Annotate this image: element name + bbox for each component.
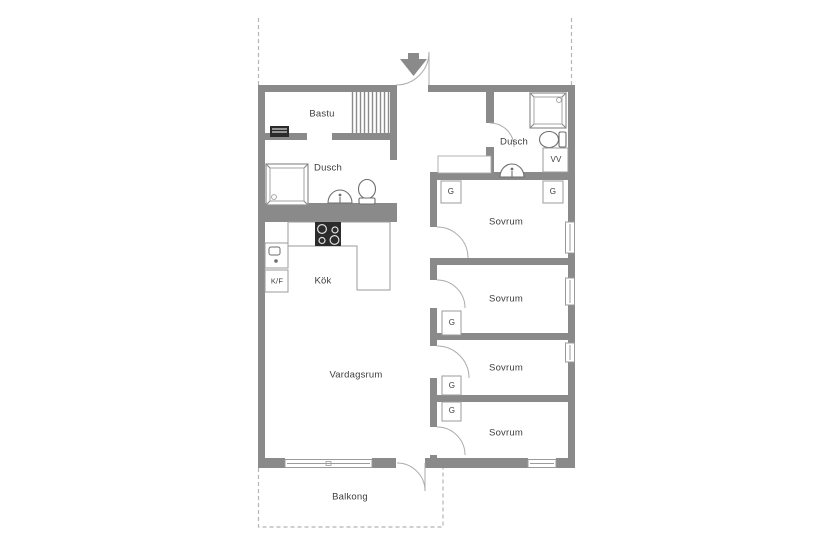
floorplan: Bastu Dusch Dusch Kök Vardagsrum Sovrum … — [0, 0, 831, 555]
entry-arrow-icon — [400, 53, 427, 76]
wall-right-3 — [568, 305, 575, 343]
door-sovrum3 — [437, 346, 469, 378]
wall-bottom-1 — [258, 458, 285, 468]
room-label-sovrum-1: Sovrum — [489, 217, 523, 227]
wall-sovrum1-sovrum2 — [430, 258, 568, 265]
wall-bedrooms-left-4 — [430, 378, 437, 427]
wall-sovrum3-sovrum4 — [430, 395, 568, 402]
wall-bastu-bottom-right — [332, 133, 390, 140]
wall-top-right — [428, 85, 575, 92]
door-sovrum1 — [437, 227, 468, 258]
wall-bottom-4 — [556, 458, 575, 468]
door-sovrum4 — [437, 427, 465, 455]
label-wardrobe-4: G — [449, 382, 455, 390]
shower-cabin-right-icon — [530, 93, 566, 128]
wall-left — [258, 85, 265, 468]
wall-top-left — [258, 85, 397, 92]
label-wardrobe-1: G — [448, 188, 454, 196]
shower-cabin-left-icon — [266, 164, 308, 205]
window-sovrum4 — [528, 460, 556, 468]
window-vardagsrum — [285, 460, 372, 468]
wall-bottom-2 — [372, 458, 396, 468]
wall-bottom-3 — [425, 458, 528, 468]
room-label-sovrum-2: Sovrum — [489, 294, 523, 304]
sink-right-icon — [500, 164, 524, 177]
window-sovrum1 — [566, 222, 575, 253]
wall-hall-left — [390, 92, 397, 160]
toilet-right-icon — [540, 132, 567, 148]
window-sovrum2 — [566, 278, 575, 305]
toilet-left-icon — [359, 180, 376, 205]
wall-bathroom-bottom — [265, 203, 397, 222]
wall-bedrooms-left-5 — [430, 455, 437, 468]
room-label-dusch-right: Dusch — [500, 137, 528, 147]
room-label-sovrum-4: Sovrum — [489, 428, 523, 438]
label-water-heater: VV — [550, 156, 561, 164]
room-label-bastu: Bastu — [309, 109, 334, 119]
label-wardrobe-5: G — [449, 407, 455, 415]
room-label-kok: Kök — [315, 276, 332, 286]
room-label-balkong: Balkong — [332, 492, 368, 502]
sauna-heater-icon — [270, 126, 289, 137]
site-boundary-dashes — [259, 18, 572, 85]
wall-bedrooms-left-3 — [430, 308, 437, 346]
wall-right-2 — [568, 253, 575, 278]
room-label-sovrum-3: Sovrum — [489, 363, 523, 373]
wall-dusch-right-stub-top — [486, 92, 494, 123]
doors — [396, 52, 514, 491]
sink-left-icon — [328, 190, 352, 203]
label-wardrobe-2: G — [550, 188, 556, 196]
interior-walls — [265, 92, 568, 468]
window-sovrum3 — [566, 343, 575, 362]
label-wardrobe-3: G — [449, 319, 455, 327]
stove-icon — [315, 222, 341, 246]
hall-wardrobe-niche — [438, 156, 491, 173]
label-fridge-freezer: K/F — [271, 277, 283, 285]
kitchen-sink-icon — [265, 243, 288, 268]
floorplan-drawing — [0, 0, 831, 555]
wall-right-1 — [568, 85, 575, 222]
wall-bedrooms-left-1 — [430, 180, 437, 227]
sauna-benches-icon — [353, 92, 389, 133]
room-label-dusch-left: Dusch — [314, 163, 342, 173]
wall-right-4 — [568, 362, 575, 468]
door-sovrum2 — [437, 280, 465, 308]
room-label-vardagsrum: Vardagsrum — [329, 370, 382, 380]
balcony-door — [397, 463, 425, 491]
